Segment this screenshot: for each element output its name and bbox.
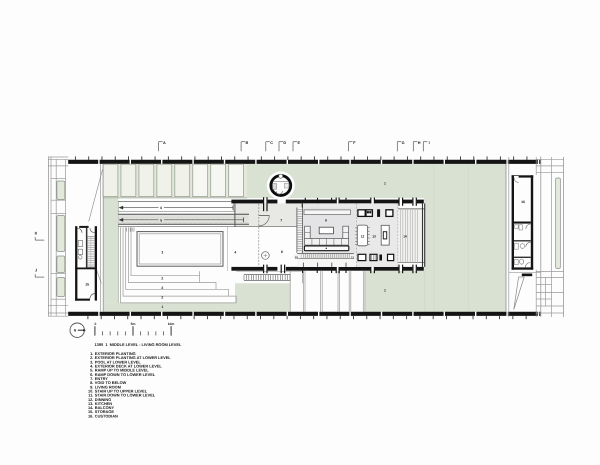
svg-text:9: 9 (325, 218, 327, 222)
svg-text:4: 4 (234, 250, 236, 254)
svg-text:15: 15 (85, 283, 89, 287)
svg-text:16.: 16. (88, 413, 93, 418)
svg-text:5: 5 (160, 218, 162, 222)
svg-text:2: 2 (161, 295, 163, 299)
svg-text:0: 0 (94, 322, 96, 326)
svg-text:1: 1 (384, 289, 386, 293)
svg-text:6: 6 (160, 206, 162, 210)
svg-text:CUSTODIAN: CUSTODIAN (95, 413, 118, 418)
svg-text:I: I (429, 141, 430, 145)
svg-text:G: G (402, 141, 405, 145)
svg-text:7: 7 (280, 219, 282, 223)
svg-text:H: H (418, 141, 421, 145)
svg-text:2: 2 (161, 277, 163, 281)
svg-text:12: 12 (361, 234, 365, 238)
svg-text:1390 1 MIDDLE LEVEL - LIVING: 1390 1 MIDDLE LEVEL - LIVING ROOM LEVEL (95, 342, 182, 347)
svg-text:16: 16 (521, 200, 525, 204)
svg-text:2: 2 (161, 286, 163, 290)
svg-text:K: K (35, 232, 38, 236)
svg-text:C: C (270, 141, 273, 145)
svg-text:D: D (283, 141, 286, 145)
svg-text:B: B (246, 141, 249, 145)
svg-text:E: E (298, 141, 301, 145)
svg-text:1: 1 (384, 181, 386, 185)
svg-text:13: 13 (372, 234, 376, 238)
svg-text:3: 3 (161, 250, 163, 254)
svg-text:10m: 10m (168, 322, 175, 326)
svg-text:1: 1 (162, 305, 164, 309)
svg-text:A: A (163, 141, 166, 145)
svg-text:5m: 5m (131, 322, 136, 326)
svg-text:J: J (35, 269, 37, 273)
svg-text:8: 8 (281, 250, 283, 254)
svg-text:14: 14 (403, 234, 407, 238)
